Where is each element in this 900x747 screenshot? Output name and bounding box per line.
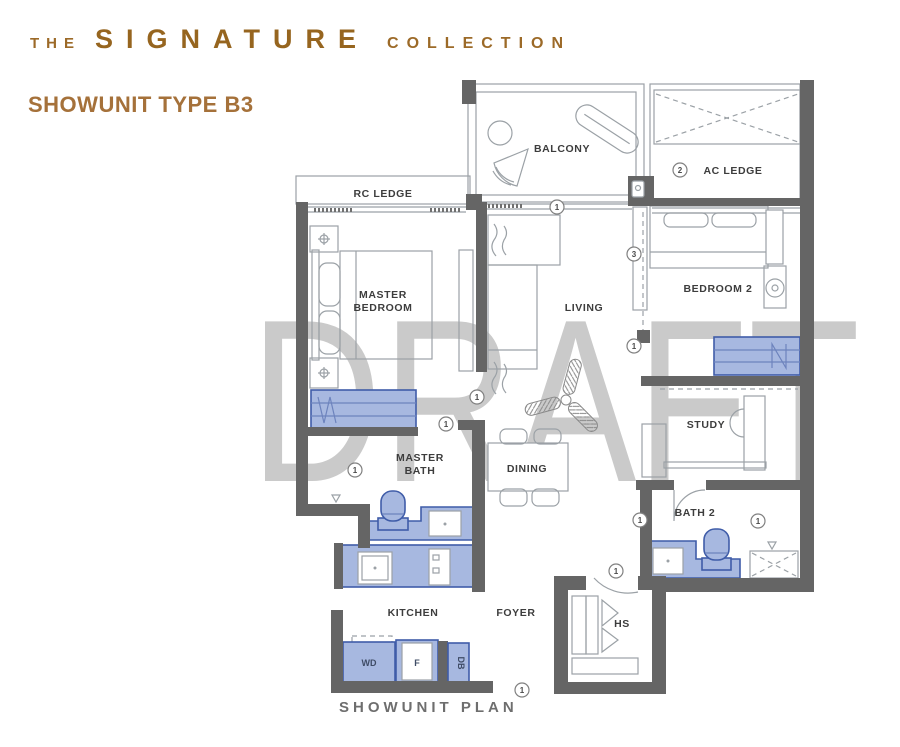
- label-kitchen: KITCHEN: [388, 607, 439, 619]
- label-master-bath-2: BATH: [405, 465, 436, 477]
- keynote: 2: [673, 163, 687, 177]
- bath2-toilet: [702, 529, 731, 570]
- plan-caption: SHOWUNIT PLAN: [339, 699, 518, 716]
- label-rc-ledge: RC LEDGE: [353, 188, 412, 200]
- keynote: 1: [470, 390, 484, 404]
- brand-the: THE: [30, 35, 81, 52]
- household-shelter: [568, 576, 652, 682]
- keynote: 1: [439, 417, 453, 431]
- label-hs: HS: [614, 618, 630, 630]
- label-ac-ledge: AC LEDGE: [703, 165, 762, 177]
- label-living: LIVING: [565, 302, 604, 314]
- floorplan-sheet: THE SIGNATURE COLLECTION SHOWUNIT TYPE B…: [0, 0, 900, 747]
- keynote: 1: [633, 513, 647, 527]
- label-master-bath-1: MASTER: [396, 452, 444, 464]
- bedroom2-bed: [650, 206, 783, 268]
- keynote: 3: [627, 247, 641, 261]
- svg-text:1: 1: [632, 342, 637, 351]
- keynote: 1: [751, 514, 765, 528]
- brand-collection: COLLECTION: [387, 35, 571, 53]
- label-study: STUDY: [687, 419, 726, 431]
- svg-text:1: 1: [638, 516, 643, 525]
- label-wd: WD: [362, 658, 377, 668]
- keynote: 1: [609, 564, 623, 578]
- svg-text:1: 1: [756, 517, 761, 526]
- svg-text:1: 1: [475, 393, 480, 402]
- kitchen-wall-strip: [438, 641, 448, 683]
- label-fridge: F: [414, 658, 420, 668]
- label-master-bedroom-1: MASTER: [359, 289, 407, 301]
- bath2-shower: [750, 542, 798, 578]
- svg-text:1: 1: [353, 466, 358, 475]
- unit-title: SHOWUNIT TYPE B3: [28, 92, 254, 118]
- brand-signature: SIGNATURE: [95, 24, 369, 55]
- svg-text:1: 1: [444, 420, 449, 429]
- keynote: 1: [348, 463, 362, 477]
- keynote: 1: [627, 339, 641, 353]
- svg-text:3: 3: [632, 250, 637, 259]
- label-master-bedroom-2: BEDROOM: [353, 302, 412, 314]
- label-dining: DINING: [507, 463, 547, 475]
- label-db: DB: [456, 657, 466, 670]
- svg-text:1: 1: [520, 686, 525, 695]
- keynote: 1: [515, 683, 529, 697]
- master-wardrobe: [311, 390, 416, 429]
- svg-text:1: 1: [614, 567, 619, 576]
- label-bath2: BATH 2: [675, 507, 716, 519]
- label-foyer: FOYER: [496, 607, 535, 619]
- master-bath-toilet: [378, 491, 408, 530]
- svg-text:2: 2: [678, 166, 683, 175]
- label-balcony: BALCONY: [534, 143, 590, 155]
- label-bedroom2: BEDROOM 2: [684, 283, 753, 295]
- bedroom2-wardrobe: [714, 337, 800, 375]
- brand-header: THE SIGNATURE COLLECTION: [30, 24, 571, 55]
- svg-text:1: 1: [555, 203, 560, 212]
- kitchen-counter: [342, 545, 483, 587]
- keynote: 1: [550, 200, 564, 214]
